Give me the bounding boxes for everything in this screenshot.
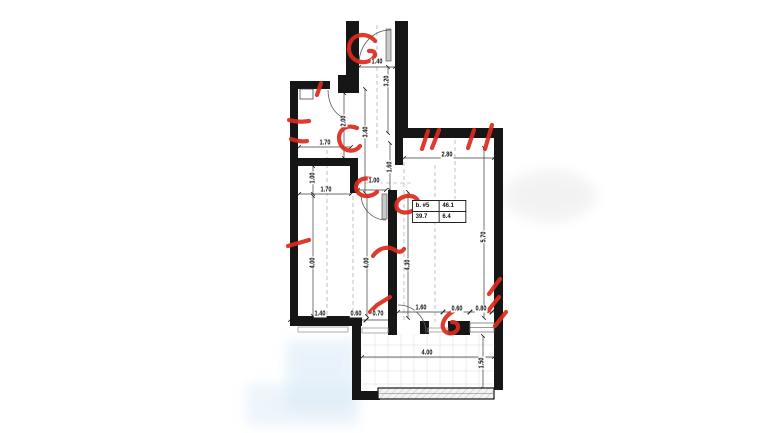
inner-door-leaf (382, 194, 387, 219)
dim-bottom-right-b: 0.60 (451, 306, 464, 313)
wall-left-outer (290, 81, 298, 326)
wall-terrace-bottom-cap (352, 391, 380, 400)
dim-terrace-width: 4.00 (421, 350, 434, 357)
dim-room-width: 2.80 (441, 152, 454, 159)
dim-wall-gap: 1.60 (387, 161, 394, 174)
wall-bath-bottom (298, 158, 358, 166)
dim-bottom-left-a: 1.40 (314, 311, 327, 318)
area-table-row: 39.7 6.4 (412, 211, 465, 222)
floor-plan-drawing (0, 0, 770, 433)
dim-hall-depth: 3.40 (363, 126, 370, 139)
red-annotation-dash-b (291, 139, 307, 141)
blue-highlight-wash (246, 340, 358, 426)
terrace-window (378, 388, 494, 399)
dim-opening-width: 1.00 (368, 178, 381, 185)
dim-right-room-depth: 4.30 (405, 259, 412, 272)
dim-bottom-left-c: 0.70 (372, 311, 385, 318)
wall-room-left-stub (395, 138, 403, 165)
dim-bath-depth: 2.00 (341, 115, 348, 128)
floor-plan-page: 1.40 3.20 3.40 2.00 1.70 1.00 1.70 1.00 … (0, 0, 770, 433)
watermark-smudge (504, 170, 596, 222)
dim-left-room-depth: 4.00 (310, 257, 317, 270)
wall-entry-jamb-block (338, 75, 359, 93)
wall-shaft-notch (300, 89, 313, 99)
dim-bath-width: 1.70 (319, 140, 332, 147)
dim-niche-height: 1.00 (310, 172, 317, 185)
dim-mid-depth: 4.00 (364, 257, 371, 270)
area-table: b. #5 46.1 39.7 6.4 (412, 200, 466, 223)
wall-right-outer (494, 128, 503, 390)
area-table-cell: 39.7 (412, 211, 439, 222)
dim-niche-width: 1.70 (320, 187, 333, 194)
dim-bottom-right-a: 1.60 (415, 305, 428, 312)
dim-entry-width: 1.40 (371, 59, 384, 66)
wall-inner-partition (388, 190, 397, 335)
dim-entry-depth: 3.20 (384, 75, 391, 88)
red-annotation-dash-a (289, 120, 309, 122)
wall-corridor-right (395, 21, 408, 138)
dim-bottom-right-c: 0.80 (475, 306, 488, 313)
dim-bottom-left-b: 0.60 (350, 311, 363, 318)
area-table-cell: 6.4 (439, 211, 466, 222)
area-table-cell: b. #5 (412, 201, 439, 212)
area-table-row: b. #5 46.1 (412, 201, 465, 212)
area-table-cell: 46.1 (439, 201, 466, 212)
wall-terrace-left (352, 326, 361, 400)
terrace-tile-grid (363, 334, 493, 387)
dim-room-depth: 5.70 (481, 231, 488, 244)
entry-door-leaf (386, 29, 391, 61)
dim-terrace-depth: 1.50 (479, 357, 486, 370)
wall-bottom-left (290, 316, 362, 326)
